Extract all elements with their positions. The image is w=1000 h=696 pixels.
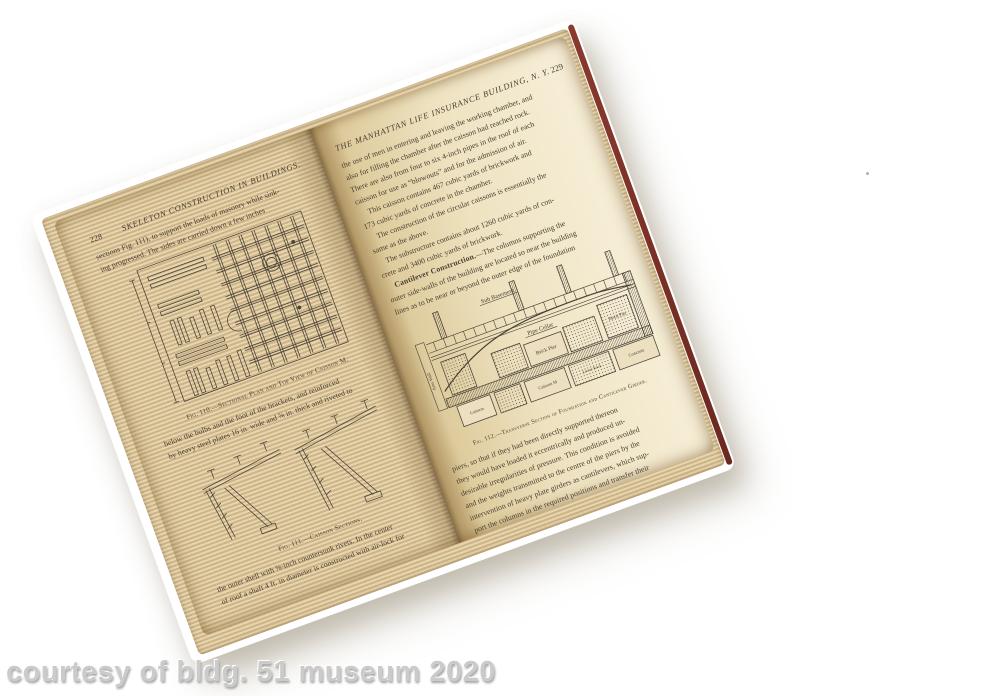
fig112-label-sub-basement: Sub Basement <box>480 288 515 306</box>
photo-background: 228 SKELETON CONSTRUCTION IN BUILDINGS. … <box>0 0 1000 696</box>
left-page-number: 228 <box>88 226 116 244</box>
watermark-text: courtesy of bldg. 51 museum 2020 <box>6 656 496 689</box>
right-page-number: 229 <box>548 61 565 75</box>
dust-speck <box>866 172 869 175</box>
open-book: 228 SKELETON CONSTRUCTION IN BUILDINGS. … <box>30 18 737 665</box>
